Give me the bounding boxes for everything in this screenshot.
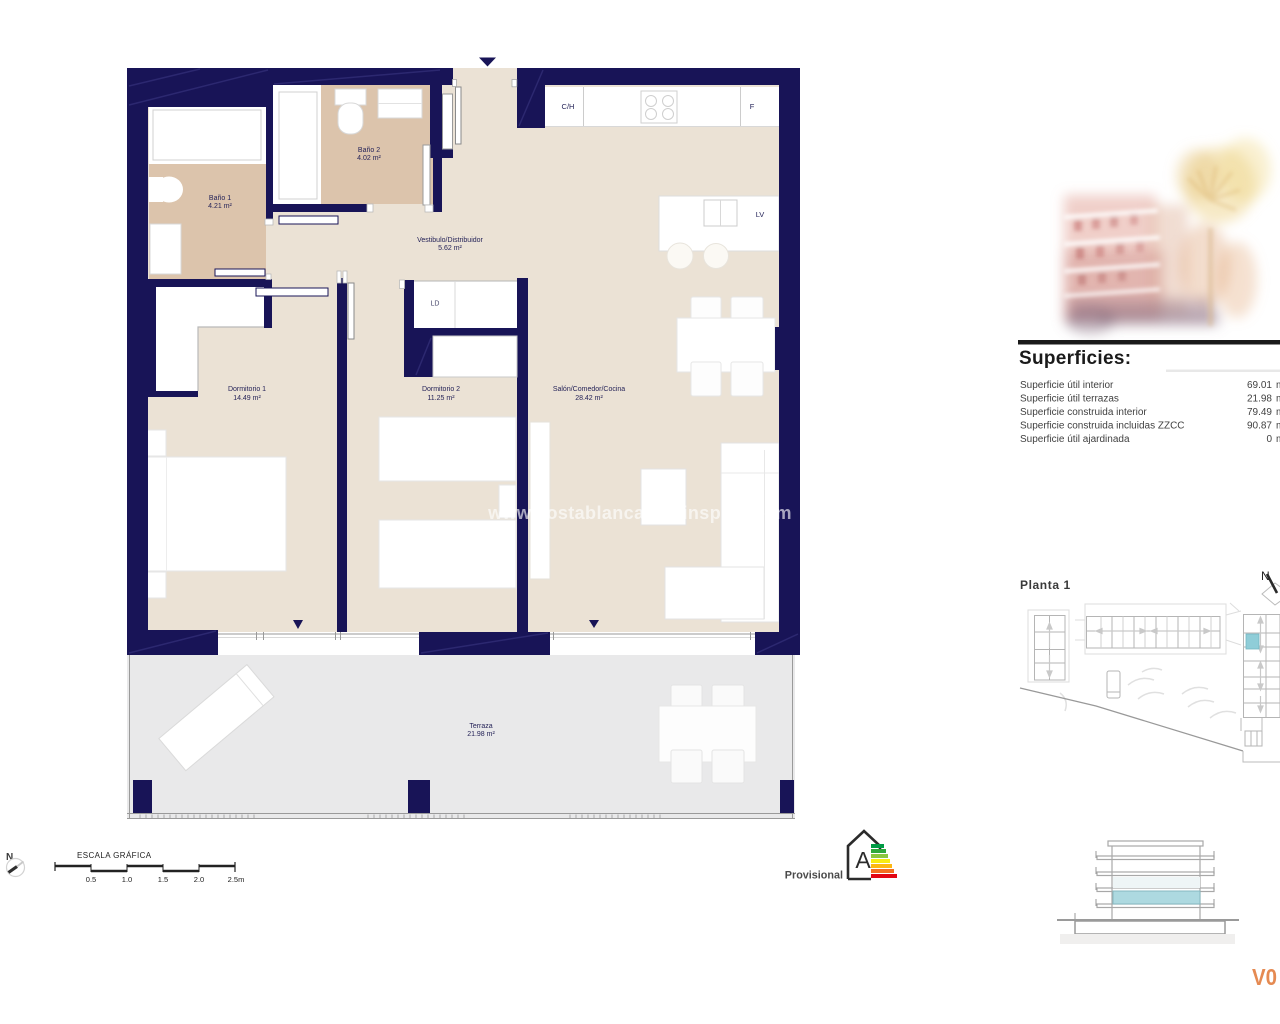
svg-text:A: A <box>855 847 871 873</box>
svg-text:Dormitorio 1: Dormitorio 1 <box>228 386 266 393</box>
svg-text:1.5: 1.5 <box>158 875 168 884</box>
svg-text:LD: LD <box>431 301 440 308</box>
svg-text:69.01: 69.01 <box>1247 380 1272 391</box>
svg-text:V0: V0 <box>1252 964 1277 990</box>
svg-text:Planta 1: Planta 1 <box>1020 578 1071 592</box>
svg-text:2.0: 2.0 <box>194 875 204 884</box>
svg-text:Superficie útil ajardinada: Superficie útil ajardinada <box>1020 434 1130 445</box>
svg-text:Baño 2: Baño 2 <box>358 147 380 154</box>
svg-text:Baño 1: Baño 1 <box>209 195 231 202</box>
svg-text:m²: m² <box>1276 380 1280 391</box>
svg-text:LV: LV <box>756 210 765 219</box>
svg-text:14.49 m²: 14.49 m² <box>233 395 261 402</box>
svg-text:C/H: C/H <box>562 102 575 111</box>
svg-text:Terraza: Terraza <box>469 723 492 730</box>
svg-text:m²: m² <box>1276 394 1280 405</box>
svg-text:Provisional: Provisional <box>785 870 843 882</box>
svg-text:m²: m² <box>1276 421 1280 432</box>
svg-text:ESCALA GRÁFICA: ESCALA GRÁFICA <box>77 851 152 860</box>
svg-text:90.87: 90.87 <box>1247 421 1272 432</box>
svg-text:Superficie útil terrazas: Superficie útil terrazas <box>1020 394 1119 405</box>
svg-text:m²: m² <box>1276 407 1280 418</box>
svg-text:Dormitorio 2: Dormitorio 2 <box>422 386 460 393</box>
svg-text:www.costablancahillsinspain.co: www.costablancahillsinspain.com <box>487 503 792 523</box>
svg-text:79.49: 79.49 <box>1247 407 1272 418</box>
svg-text:Superficie construida interior: Superficie construida interior <box>1020 407 1147 418</box>
svg-text:Superficie construida incluida: Superficie construida incluidas ZZCC <box>1020 421 1185 432</box>
svg-text:21.98 m²: 21.98 m² <box>467 731 495 738</box>
svg-text:1.0: 1.0 <box>122 875 132 884</box>
svg-text:Superficie útil interior: Superficie útil interior <box>1020 380 1114 391</box>
svg-text:5.62 m²: 5.62 m² <box>438 245 462 252</box>
svg-text:Salón/Comedor/Cocina: Salón/Comedor/Cocina <box>553 386 625 393</box>
svg-text:Vestibulo/Distribuidor: Vestibulo/Distribuidor <box>417 237 483 244</box>
svg-text:4.02 m²: 4.02 m² <box>357 155 381 162</box>
svg-text:28.42 m²: 28.42 m² <box>575 395 603 402</box>
svg-text:0: 0 <box>1266 434 1272 445</box>
svg-text:F: F <box>750 102 755 111</box>
svg-text:0.5: 0.5 <box>86 875 96 884</box>
svg-text:11.25 m²: 11.25 m² <box>427 395 455 402</box>
svg-text:m²: m² <box>1276 434 1280 445</box>
svg-text:21.98: 21.98 <box>1247 394 1272 405</box>
svg-text:4.21 m²: 4.21 m² <box>208 203 232 210</box>
svg-text:2.5m: 2.5m <box>228 875 245 884</box>
svg-text:Superficies:: Superficies: <box>1019 348 1131 369</box>
